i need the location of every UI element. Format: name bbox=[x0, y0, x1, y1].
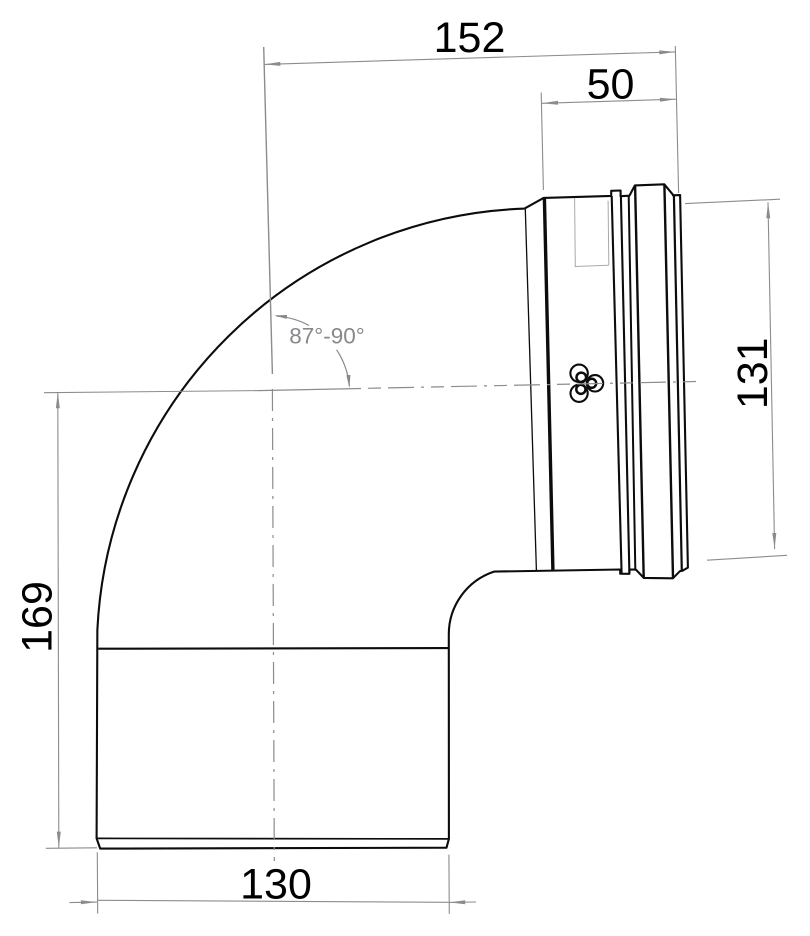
svg-text:169: 169 bbox=[13, 581, 61, 653]
svg-text:131: 131 bbox=[729, 337, 777, 409]
svg-text:50: 50 bbox=[587, 61, 635, 109]
svg-text:130: 130 bbox=[240, 860, 312, 908]
svg-text:87°-90°: 87°-90° bbox=[289, 323, 365, 348]
svg-text:152: 152 bbox=[434, 14, 506, 62]
